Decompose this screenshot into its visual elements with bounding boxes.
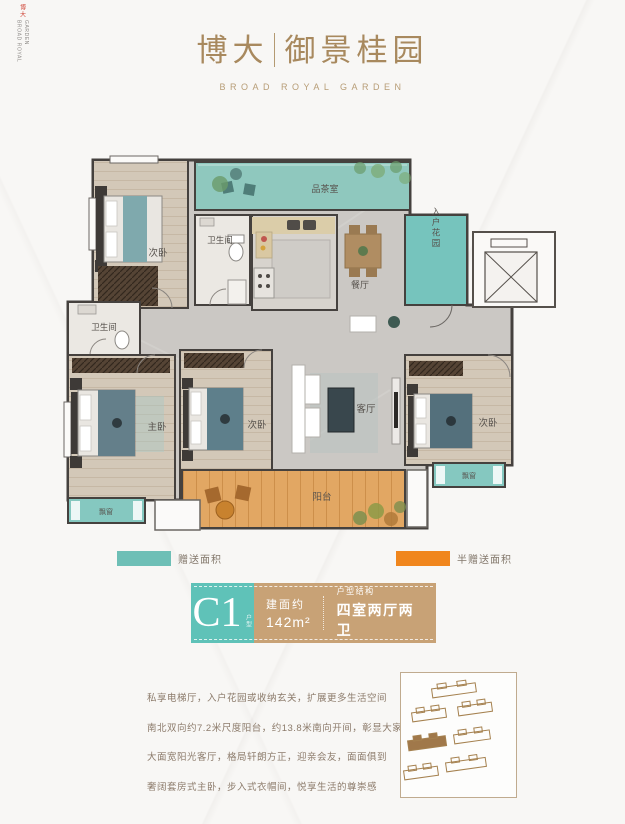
legend-half-gift-area: 半赠送面积 xyxy=(396,551,512,566)
room-label-bathroom-left: 卫生间 xyxy=(91,322,117,332)
unit-card: C1 户型 建面约 142m² 户型结构 四室两厅两卫 xyxy=(191,583,436,643)
room-master-bedroom: 主卧 xyxy=(64,355,175,500)
room-bathroom-top: 卫生间 xyxy=(195,215,250,305)
sink-icon xyxy=(200,218,214,226)
ac-platform xyxy=(155,500,200,530)
site-building-highlighted xyxy=(407,732,447,751)
balcony-chair xyxy=(235,485,252,502)
tv-icon xyxy=(394,392,398,428)
unit-area-label: 建面约 xyxy=(266,596,311,612)
description-line: 大面宽阳光客厅，格局轩朗方正，迎亲会友，面面俱到 xyxy=(147,743,422,773)
logo-cn-left: 博大 xyxy=(197,35,269,66)
legend-orange-swatch xyxy=(396,551,450,566)
window xyxy=(89,198,96,250)
bed-icon xyxy=(70,378,135,468)
legend-gift-label: 赠送面积 xyxy=(178,551,222,566)
room-label-bathroom-top: 卫生间 xyxy=(207,235,233,245)
room-label-master: 主卧 xyxy=(147,421,167,433)
legend-teal-swatch xyxy=(117,551,171,566)
balcony-table xyxy=(216,501,234,519)
bed-icon xyxy=(407,384,472,457)
unit-area-group: 建面约 142m² xyxy=(254,596,323,630)
unit-code-block: C1 户型 xyxy=(191,583,254,643)
ac-platform xyxy=(407,470,427,527)
bed-icon xyxy=(182,378,243,461)
stove-icon xyxy=(254,268,274,298)
room-label-bay-right: 飘窗 xyxy=(462,471,476,480)
room-balcony: 阳台 xyxy=(182,470,406,528)
room-kitchen xyxy=(252,215,337,310)
room-label-bedroom-middle: 次卧 xyxy=(247,419,267,431)
floor-plan: 品茶室 次卧 卫生间 xyxy=(60,140,565,545)
legend-half-gift-label: 半赠送面积 xyxy=(457,551,512,566)
room-bedroom-top-left: 次卧 xyxy=(89,156,188,308)
unit-structure-group: 户型结构 四室两厅两卫 xyxy=(325,586,436,640)
room-label-entry-garden: 入户花园 xyxy=(431,207,441,249)
room-tea: 品茶室 xyxy=(195,161,411,210)
armchair-icon xyxy=(350,316,376,332)
centerpiece-plant xyxy=(358,246,368,256)
room-label-bedroom-top: 次卧 xyxy=(148,247,168,259)
room-label-dining: 餐厅 xyxy=(351,279,369,290)
sink-icon xyxy=(287,220,300,230)
toilet-icon xyxy=(115,331,129,349)
window xyxy=(64,402,71,457)
logo-cn-right: 御景桂园 xyxy=(285,35,429,66)
site-building xyxy=(431,679,476,698)
plant-icon xyxy=(212,176,228,192)
room-bathroom-left: 卫生间 xyxy=(68,302,140,355)
site-building xyxy=(453,726,490,744)
room-label-bay-left: 飘窗 xyxy=(99,507,113,516)
poster-page: { "side_brand": { "mark": "博大", "text": … xyxy=(0,0,625,824)
basin-cabinet xyxy=(228,280,246,304)
tea-table xyxy=(230,168,242,180)
description-paragraph: 私享电梯厅，入户花园或收纳玄关，扩展更多生活空间 南北双向约7.2米尺度阳台，约… xyxy=(147,684,422,802)
description-line: 私享电梯厅，入户花园或收纳玄关，扩展更多生活空间 xyxy=(147,684,422,714)
unit-structure-label: 户型结构 xyxy=(337,586,424,597)
wardrobe-icon xyxy=(72,358,170,373)
logo-divider xyxy=(274,33,275,67)
site-plan-map xyxy=(400,672,517,798)
wardrobe-icon xyxy=(98,266,158,306)
sink-icon xyxy=(78,305,96,314)
legend-gift-area: 赠送面积 xyxy=(117,551,222,566)
site-building xyxy=(403,762,438,780)
room-label-balcony: 阳台 xyxy=(312,491,331,503)
unit-structure-value: 四室两厅两卫 xyxy=(337,600,424,640)
room-label-living: 客厅 xyxy=(356,403,376,415)
wardrobe-icon xyxy=(409,361,463,376)
bed-icon xyxy=(95,186,162,272)
site-building xyxy=(457,698,492,716)
plant-icon xyxy=(388,316,400,328)
unit-code: C1 xyxy=(192,592,241,634)
description-line: 南北双向约7.2米尺度阳台，约13.8米南向开间，彰显大家风范 xyxy=(147,714,422,744)
coffee-table-icon xyxy=(328,388,354,432)
brand-logo: 博大 御景桂园 xyxy=(0,33,625,67)
sink-icon xyxy=(303,220,316,230)
site-building xyxy=(411,704,446,722)
bay-window-left: 飘窗 xyxy=(68,498,145,523)
toilet-icon xyxy=(229,243,243,261)
description-line: 奢阔套房式主卧，步入式衣帽间，悦享生活的尊崇感 xyxy=(147,773,422,803)
sofa-icon xyxy=(292,365,305,453)
unit-code-tag: 户型 xyxy=(244,614,253,628)
elevator-shaft xyxy=(473,232,555,307)
room-label-bedroom-right: 次卧 xyxy=(478,417,498,429)
room-bedroom-right: 次卧 xyxy=(405,355,512,465)
side-brand-mark: 博大 xyxy=(19,4,25,18)
unit-area-value: 142m² xyxy=(266,614,311,630)
site-building xyxy=(445,753,486,771)
logo-subtitle-en: BROAD ROYAL GARDEN xyxy=(0,82,625,92)
wardrobe-icon xyxy=(184,353,244,368)
bay-window-right: 飘窗 xyxy=(433,463,505,487)
unit-info-block: 建面约 142m² 户型结构 四室两厅两卫 xyxy=(254,583,436,643)
kitchen-island xyxy=(272,240,330,298)
room-label-tea: 品茶室 xyxy=(311,183,338,194)
window xyxy=(110,156,158,163)
